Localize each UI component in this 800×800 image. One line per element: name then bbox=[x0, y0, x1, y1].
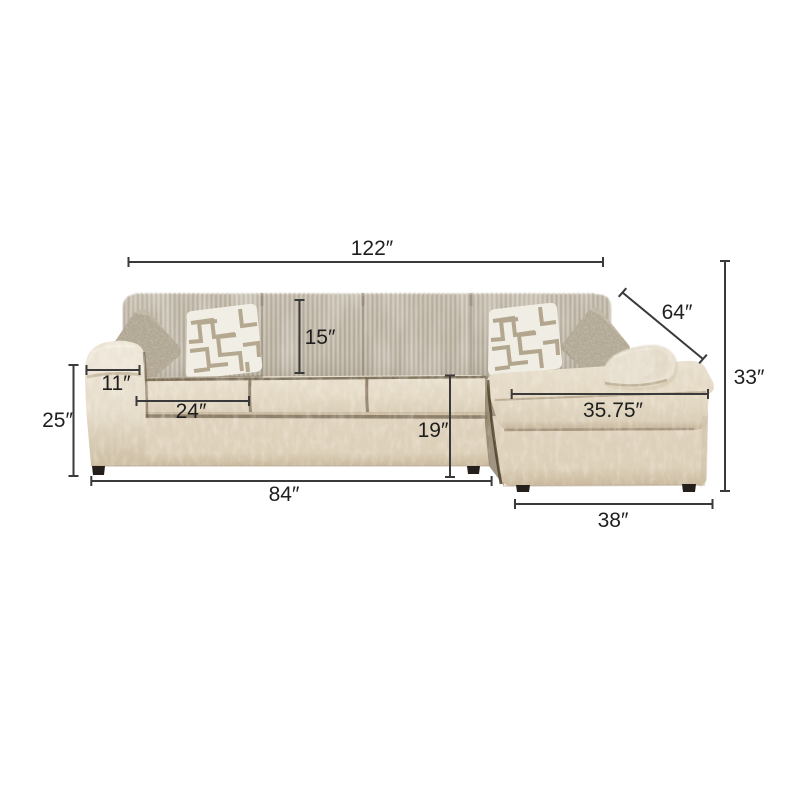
svg-text:15″: 15″ bbox=[305, 326, 336, 349]
svg-text:25″: 25″ bbox=[42, 409, 73, 432]
svg-text:122″: 122″ bbox=[351, 237, 394, 260]
svg-text:24″: 24″ bbox=[176, 400, 207, 423]
svg-text:84″: 84″ bbox=[269, 483, 300, 506]
svg-text:38″: 38″ bbox=[598, 509, 629, 532]
svg-text:35.75″: 35.75″ bbox=[583, 399, 644, 422]
svg-text:64″: 64″ bbox=[662, 301, 693, 324]
svg-text:11″: 11″ bbox=[101, 372, 131, 395]
svg-text:19″: 19″ bbox=[418, 419, 449, 442]
svg-text:33″: 33″ bbox=[734, 366, 765, 389]
